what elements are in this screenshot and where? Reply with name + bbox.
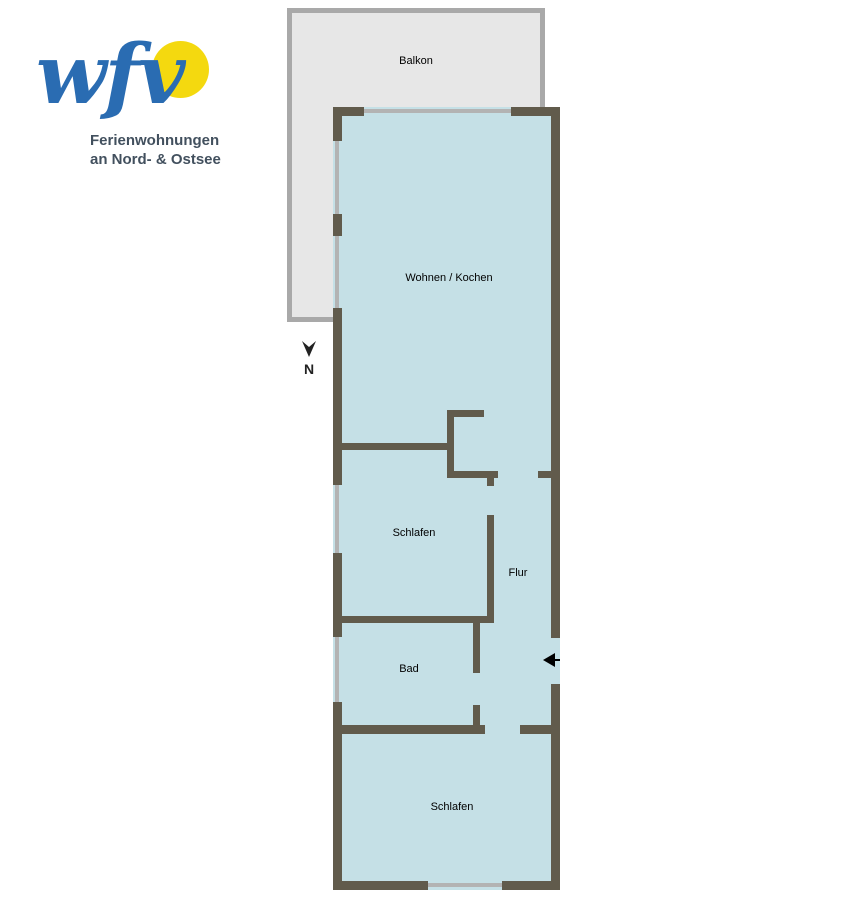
outer-wall-segment bbox=[551, 107, 560, 638]
outer-wall-segment bbox=[333, 553, 342, 637]
outer-wall-segment bbox=[502, 881, 560, 890]
outer-wall-segment bbox=[333, 107, 342, 141]
interior-wall-segment bbox=[342, 443, 453, 450]
interior-wall-segment bbox=[447, 410, 484, 417]
outer-wall-segment bbox=[333, 881, 428, 890]
room-label-wohnen-kochen: Wohnen / Kochen bbox=[405, 272, 492, 284]
interior-wall-segment bbox=[342, 616, 494, 623]
window-segment bbox=[364, 109, 511, 113]
interior-wall-segment bbox=[520, 725, 551, 734]
interior-wall-segment bbox=[447, 471, 498, 478]
interior-wall-segment bbox=[342, 725, 485, 734]
interior-wall-segment bbox=[538, 471, 551, 478]
outer-wall-segment bbox=[333, 308, 342, 485]
north-arrow-icon bbox=[299, 339, 319, 359]
north-label: N bbox=[304, 361, 314, 377]
interior-wall-segment bbox=[447, 410, 454, 478]
entrance-arrow-icon bbox=[542, 653, 560, 667]
page: wfv Ferienwohnungen an Nord- & Ostsee Ba… bbox=[0, 0, 850, 899]
logo-tagline: Ferienwohnungen an Nord- & Ostsee bbox=[90, 131, 221, 169]
logo-wordmark: wfv bbox=[36, 30, 184, 120]
logo-tagline-line2: an Nord- & Ostsee bbox=[90, 150, 221, 169]
apartment-interior bbox=[333, 107, 560, 890]
room-label-schlafen-1: Schlafen bbox=[393, 527, 436, 539]
window-segment bbox=[335, 485, 339, 553]
outer-wall-segment bbox=[333, 214, 342, 236]
interior-wall-segment bbox=[473, 623, 480, 673]
window-segment bbox=[428, 883, 502, 887]
outer-wall-segment bbox=[551, 684, 560, 890]
window-segment bbox=[335, 637, 339, 702]
interior-wall-segment bbox=[487, 515, 494, 623]
interior-wall-segment bbox=[473, 705, 480, 727]
logo-tagline-line1: Ferienwohnungen bbox=[90, 131, 221, 150]
room-label-flur: Flur bbox=[509, 567, 528, 579]
outer-wall-segment bbox=[333, 702, 342, 890]
room-label-bad: Bad bbox=[399, 663, 419, 675]
window-segment bbox=[335, 236, 339, 308]
room-label-schlafen-2: Schlafen bbox=[431, 801, 474, 813]
room-label-balkon: Balkon bbox=[399, 55, 433, 67]
interior-wall-segment bbox=[487, 478, 494, 486]
window-segment bbox=[335, 141, 339, 214]
